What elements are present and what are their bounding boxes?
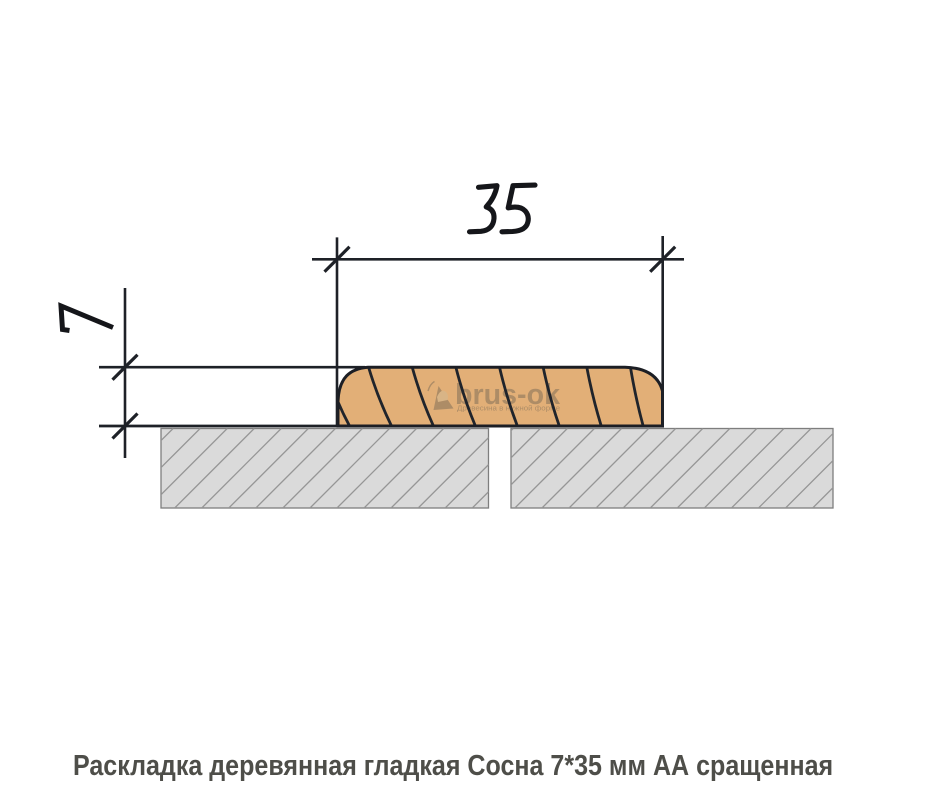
svg-text:Древесина в нужной форме: Древесина в нужной форме: [457, 405, 560, 413]
